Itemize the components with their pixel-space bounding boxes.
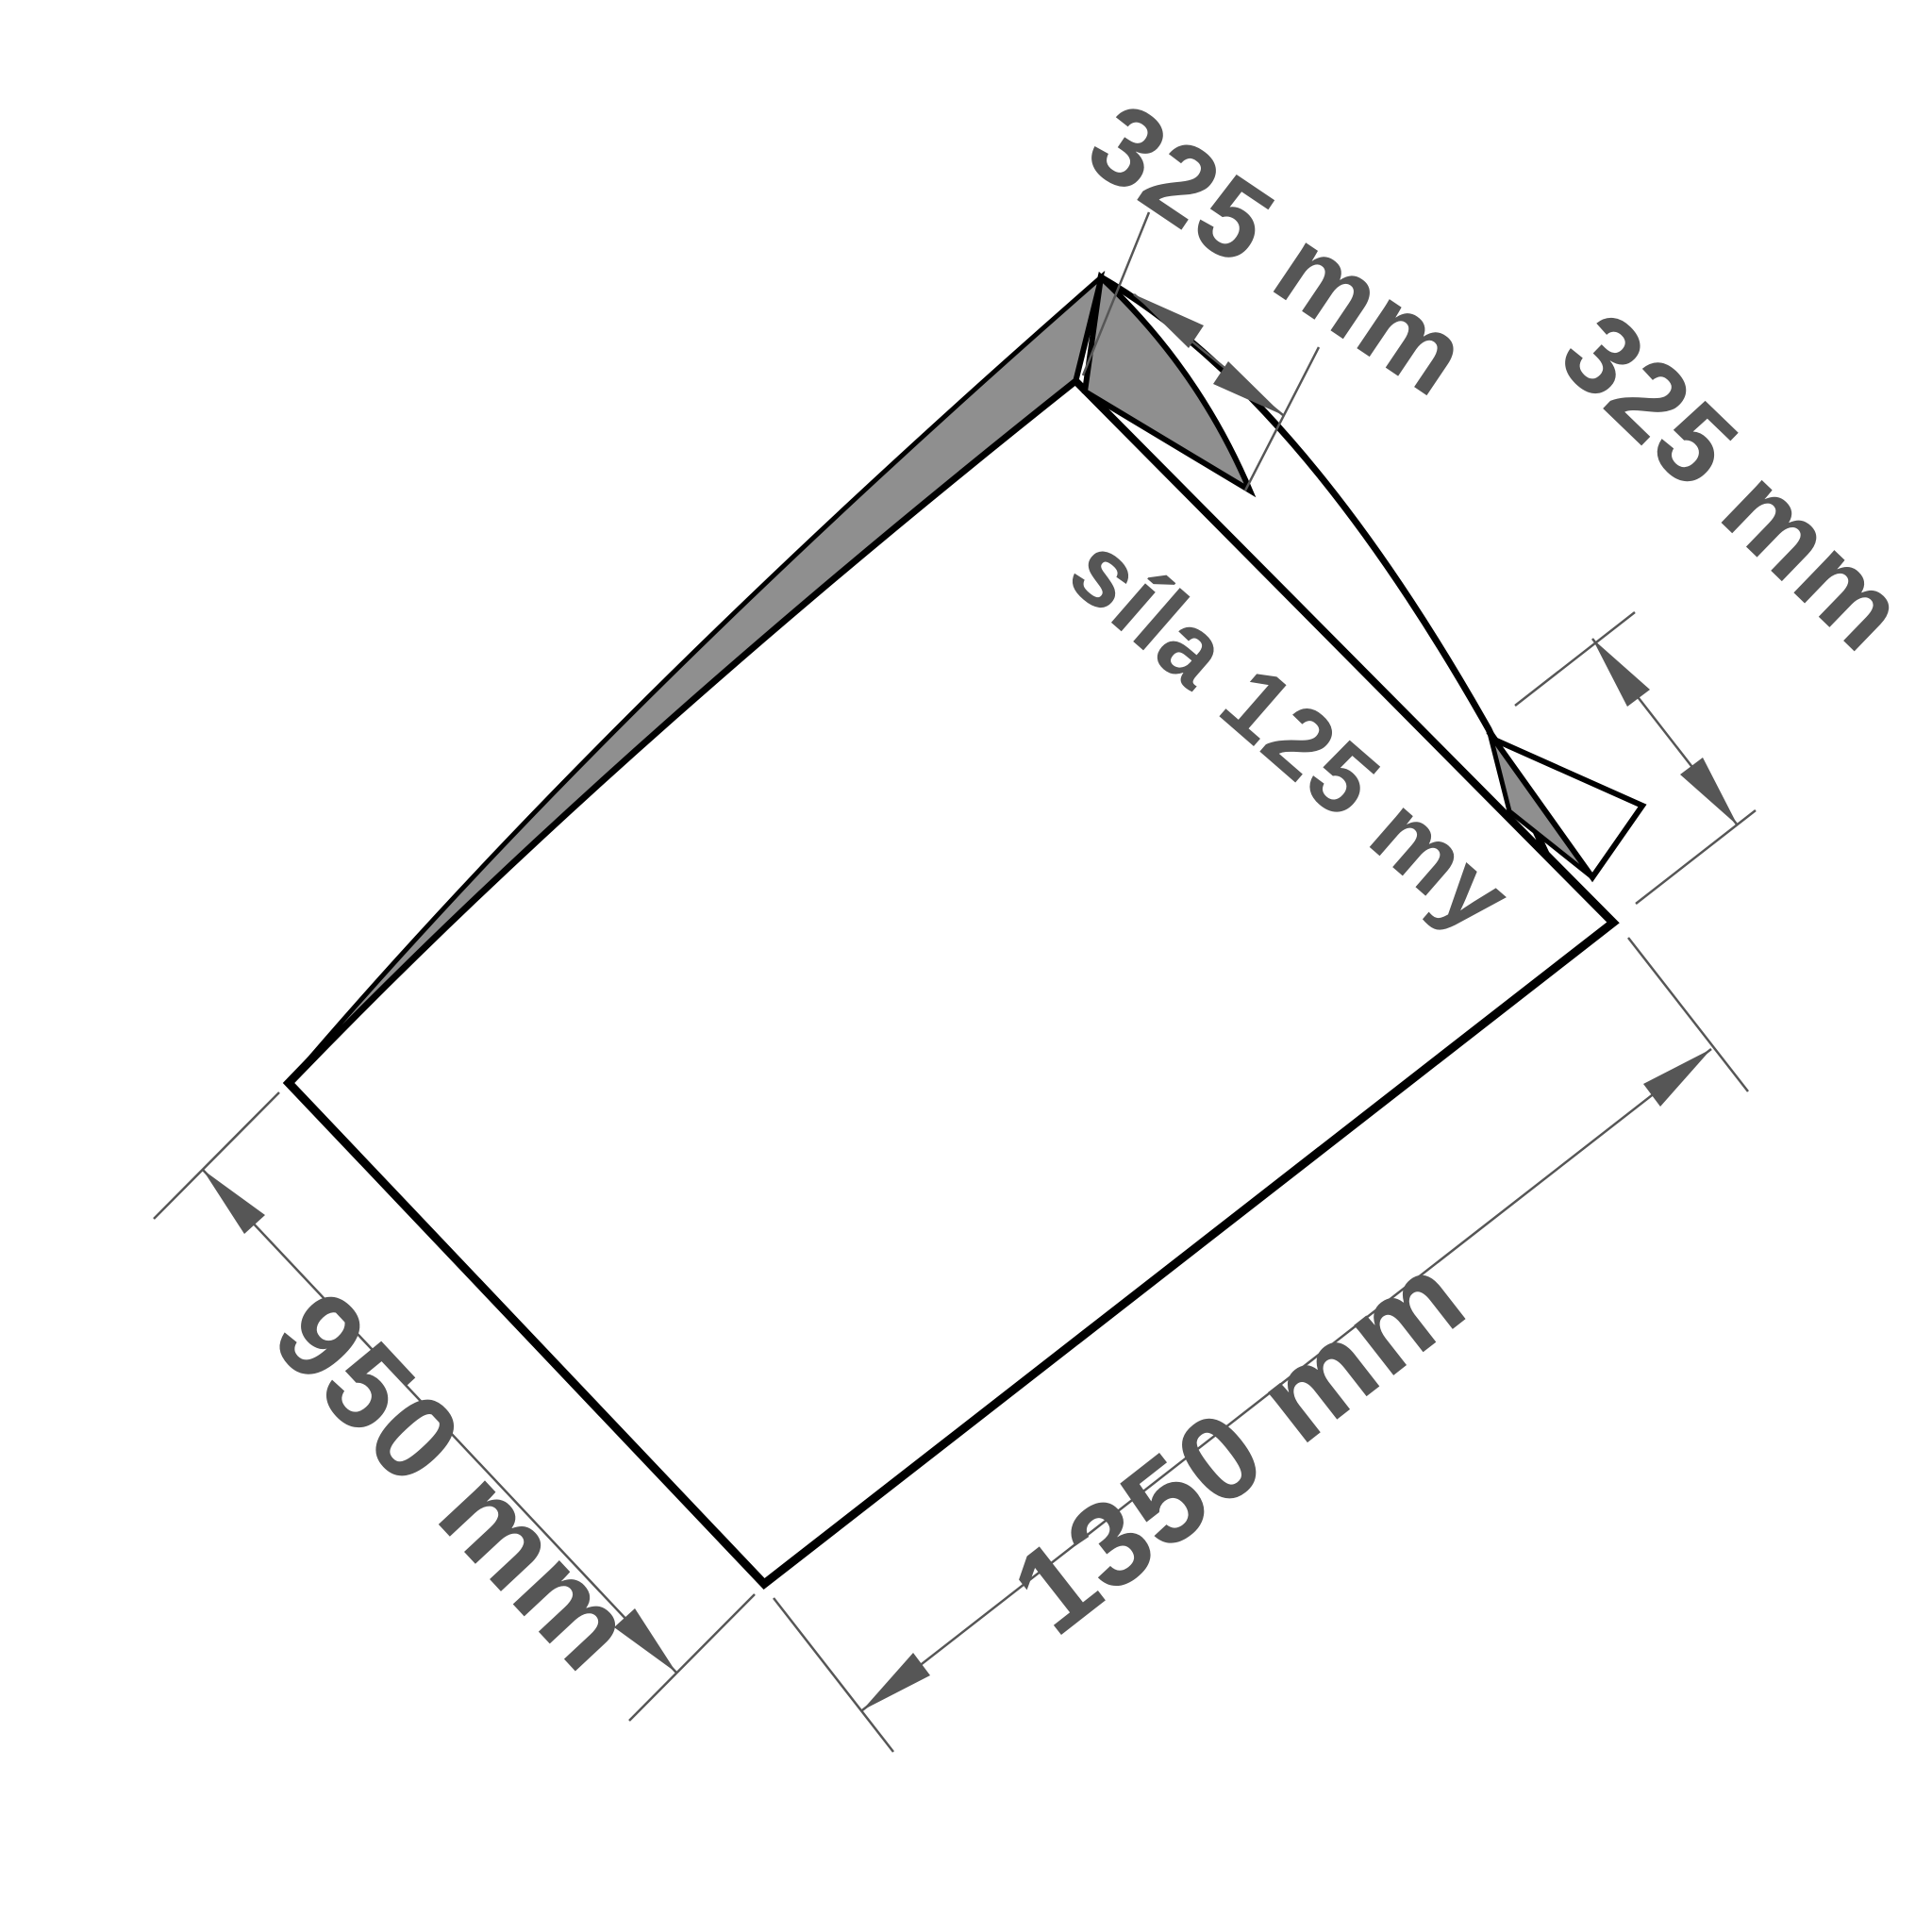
arrowhead [1592, 639, 1650, 707]
arrowhead [1680, 758, 1738, 825]
drawing-canvas: 325 mm 325 mm 950 mm 1350 mm síla 125 my [0, 0, 1932, 1932]
label-flap-side: 325 mm [1538, 290, 1930, 675]
bag-front-panel [289, 380, 1613, 1584]
arrowhead [862, 1653, 930, 1710]
ext-line [154, 1092, 279, 1219]
ext-line [1515, 612, 1635, 706]
arrowhead [1643, 1049, 1711, 1107]
ext-line [774, 1598, 893, 1752]
bag-diagram: 325 mm 325 mm 950 mm 1350 mm síla 125 my [0, 0, 1932, 1932]
